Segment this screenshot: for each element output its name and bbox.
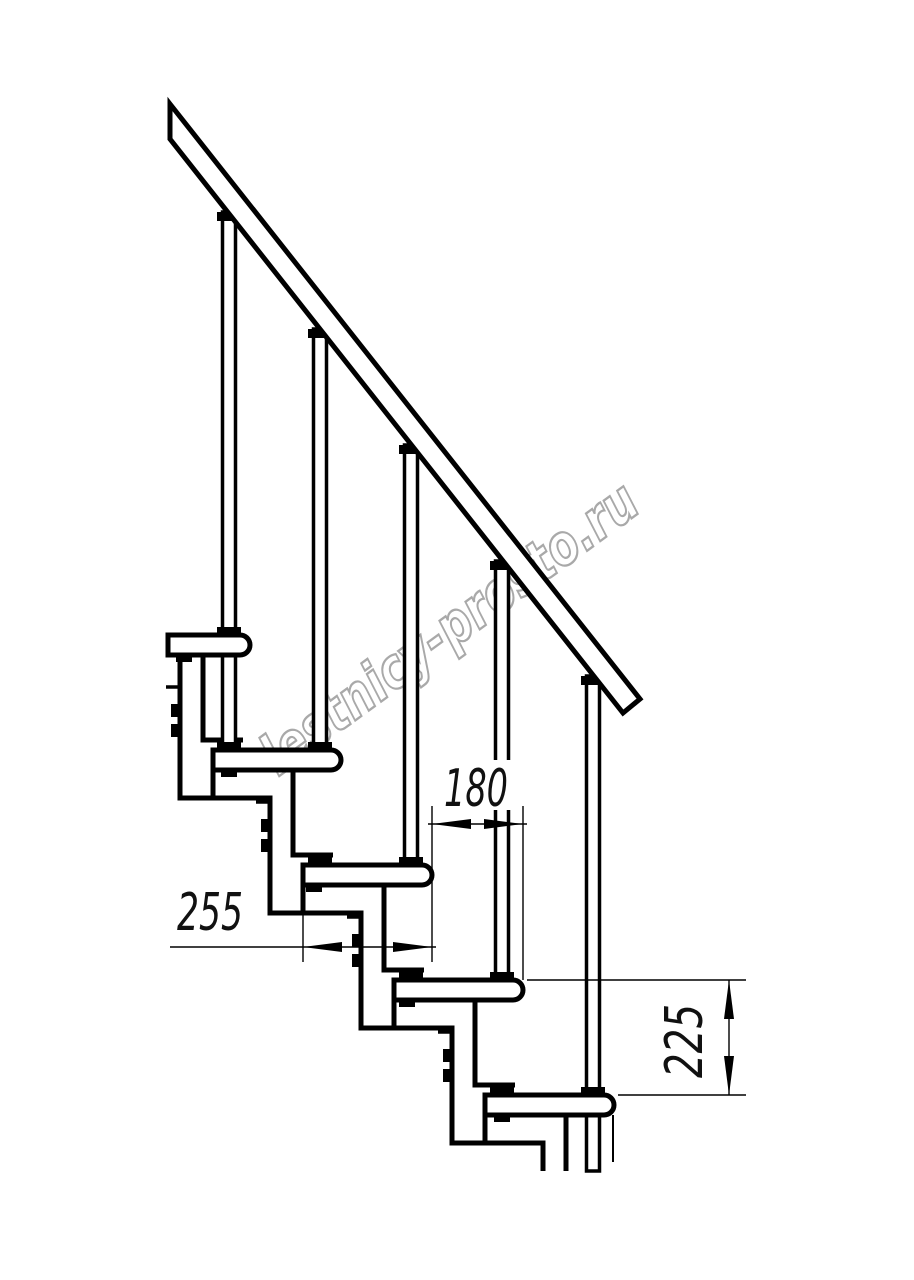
tread-4 [394,980,523,1000]
bolt [443,1049,452,1062]
tread-1 [168,635,250,655]
dimension-arrow [724,1056,734,1095]
collar [490,1087,514,1095]
collar [490,972,514,980]
dimension-tread-depth: 255 [170,883,436,962]
dimension-label-going: 180 [444,759,508,819]
collar [399,857,423,865]
collar [217,627,241,635]
bolt [352,954,361,967]
baluster-3 [405,445,418,865]
baluster-2 [314,329,327,750]
dimension-arrow [303,942,342,952]
spine-plate [475,1000,515,1085]
drawing-canvas: lestnicy-prosto.ru [0,0,914,1280]
tab [494,1115,510,1122]
tab [399,1000,415,1007]
bolt [171,704,180,717]
spine-plate [384,885,424,970]
tread-2 [213,750,341,770]
bolt [352,934,361,947]
collar [581,1087,605,1095]
tab [176,655,192,662]
collar [217,742,241,750]
spine-plate [293,770,333,855]
tread-3 [303,865,432,885]
dimension-arrow [432,819,471,829]
baluster-1 [223,212,236,750]
bolt [443,1069,452,1082]
bolt [261,819,270,832]
dimension-rise: 225 [527,980,746,1095]
bolt [171,724,180,737]
collar [399,972,423,980]
dimension-arrow [724,980,734,1019]
collar [308,857,332,865]
staircase-drawing: lestnicy-prosto.ru [0,0,914,1280]
dimension-going: 180 [428,759,527,980]
tab [306,885,322,892]
dimension-label-rise: 225 [655,1004,715,1078]
tab [221,770,237,777]
bolt [261,839,270,852]
tread-5 [485,1095,614,1115]
collar [308,742,332,750]
dimension-arrow [393,942,432,952]
dimension-label-tread-depth: 255 [177,883,243,943]
